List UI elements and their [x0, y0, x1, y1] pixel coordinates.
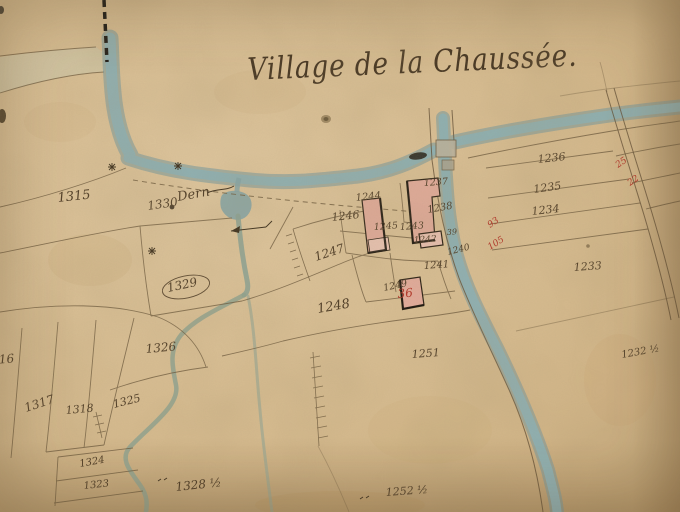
cadastral-map: Village de la Chaussée. Dern 1315 1330 1… — [0, 0, 680, 512]
map-canvas: Village de la Chaussée. Dern 1315 1330 1… — [0, 0, 680, 512]
paper-grain-texture — [0, 0, 680, 512]
